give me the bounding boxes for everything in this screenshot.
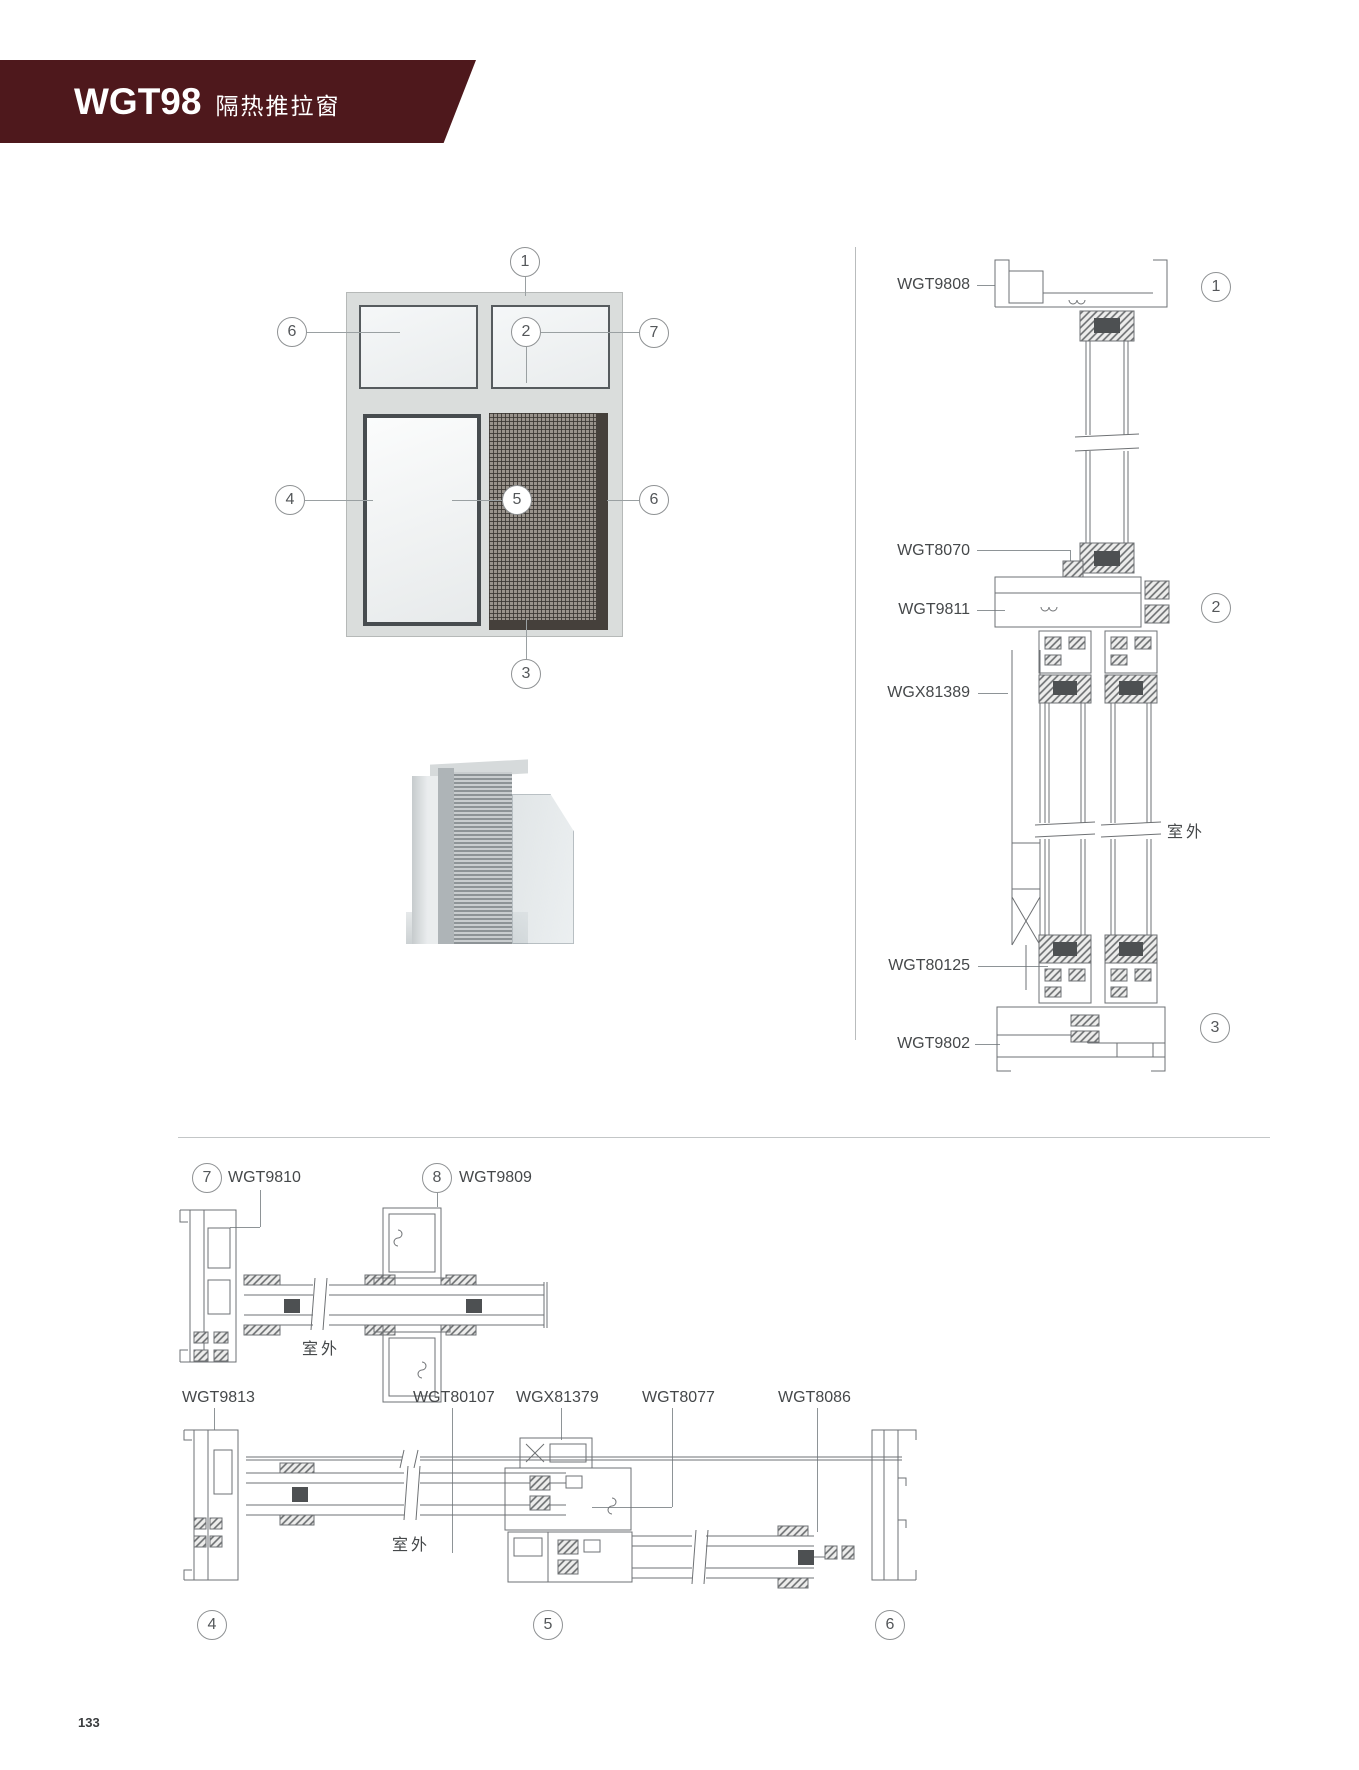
label-wgt8086: WGT8086 (778, 1389, 851, 1407)
screen-bottom-rail (489, 620, 608, 630)
label-wgx81389: WGX81389 (855, 684, 970, 702)
callout-7-detail-number: 7 (203, 1169, 212, 1187)
callout-8-detail: 8 (422, 1163, 452, 1193)
leader-3 (526, 619, 527, 659)
section-callout-2: 2 (1201, 593, 1231, 623)
label-wgt80107: WGT80107 (413, 1389, 495, 1407)
header-banner: WGT98 隔热推拉窗 (0, 60, 476, 143)
leader-6-right (607, 500, 639, 501)
catalog-page: WGT98 隔热推拉窗 1 2 3 4 5 6 6 7 WGT9808 WGT (0, 0, 1359, 1770)
profile-3d-track-bar (438, 768, 454, 944)
callout-6-left: 6 (277, 317, 307, 347)
product-code: WGT98 (74, 81, 201, 123)
section-callout-1: 1 (1201, 272, 1231, 302)
screen-pull-bar (596, 413, 608, 630)
callout-6-detail-number: 6 (886, 1616, 895, 1634)
callout-6-detail: 6 (875, 1610, 905, 1640)
callout-3: 3 (511, 659, 541, 689)
callout-1: 1 (510, 247, 540, 277)
leader-2-down (526, 347, 527, 383)
callout-6-left-number: 6 (288, 323, 297, 341)
page-section-divider (178, 1137, 1270, 1138)
product-name: 隔热推拉窗 (215, 87, 340, 121)
label-wgt9810: WGT9810 (228, 1169, 301, 1187)
leader-2-7 (541, 332, 639, 333)
callout-6-right-number: 6 (650, 491, 659, 509)
callout-1-number: 1 (521, 253, 530, 271)
window-elevation (346, 292, 623, 637)
callout-7-detail: 7 (192, 1163, 222, 1193)
label-wgt80125: WGT80125 (855, 957, 970, 975)
vertical-section-drawing (985, 245, 1180, 1080)
sliding-sash-glass (363, 414, 481, 626)
callout-2-number: 2 (522, 323, 531, 341)
profile-3d-frame-bar (412, 776, 438, 944)
section-callout-2-number: 2 (1212, 599, 1221, 617)
callout-4-detail: 4 (197, 1610, 227, 1640)
callout-5: 5 (502, 485, 532, 515)
leader-1 (525, 277, 526, 296)
label-wgt8070: WGT8070 (855, 542, 970, 560)
outside-label-bottom-row: 室外 (392, 1537, 430, 1555)
section-divider-vertical (855, 247, 856, 1040)
leader-6-left (307, 332, 400, 333)
label-wgx81379: WGX81379 (516, 1389, 599, 1407)
callout-6-right: 6 (639, 485, 669, 515)
label-wgt9813: WGT9813 (182, 1389, 255, 1407)
callout-7: 7 (639, 318, 669, 348)
label-wgt9808: WGT9808 (855, 276, 970, 294)
callout-4-number: 4 (286, 491, 295, 509)
horizontal-section-bottom-drawing (180, 1420, 940, 1610)
label-wgt8077: WGT8077 (642, 1389, 715, 1407)
label-wgt9811: WGT9811 (855, 601, 970, 619)
callout-8-detail-number: 8 (433, 1169, 442, 1187)
top-right-pane (491, 305, 610, 389)
callout-4: 4 (275, 485, 305, 515)
callout-5-detail: 5 (533, 1610, 563, 1640)
callout-3-number: 3 (522, 665, 531, 683)
section-callout-1-number: 1 (1212, 278, 1221, 296)
profile-3d-mesh (454, 772, 512, 944)
outside-label-top-row: 室外 (302, 1341, 340, 1359)
section-callout-3-number: 3 (1211, 1019, 1220, 1037)
profile-3d-image (412, 762, 582, 947)
leader-5 (452, 500, 502, 501)
leader-4 (305, 500, 373, 501)
profile-3d-glass (512, 794, 574, 944)
callout-5-number: 5 (513, 491, 522, 509)
page-number: 133 (78, 1715, 100, 1730)
callout-5-detail-number: 5 (544, 1616, 553, 1634)
section-callout-3: 3 (1200, 1013, 1230, 1043)
callout-7-number: 7 (650, 324, 659, 342)
horizontal-section-top-drawing (160, 1200, 560, 1410)
callout-4-detail-number: 4 (208, 1616, 217, 1634)
label-wgt9802: WGT9802 (855, 1035, 970, 1053)
label-wgt9809: WGT9809 (459, 1169, 532, 1187)
insect-screen (489, 413, 608, 630)
callout-2: 2 (511, 317, 541, 347)
top-left-pane (359, 305, 478, 389)
